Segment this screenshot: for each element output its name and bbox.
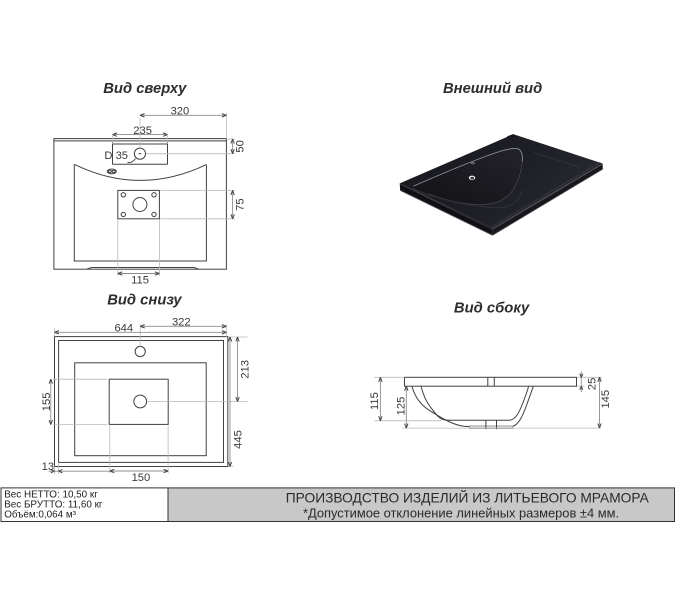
svg-text:Вид снизу: Вид снизу	[107, 293, 182, 309]
svg-text:115: 115	[131, 275, 149, 287]
svg-text:Объём:0,064 м³: Объём:0,064 м³	[4, 510, 76, 521]
svg-text:145: 145	[600, 390, 612, 409]
svg-text:320: 320	[171, 106, 190, 118]
svg-text:155: 155	[41, 393, 53, 412]
svg-text:Внешний вид: Внешний вид	[443, 81, 542, 97]
svg-text:75: 75	[234, 198, 246, 210]
svg-text:322: 322	[172, 317, 191, 329]
svg-text:213: 213	[239, 360, 251, 379]
svg-text:125: 125	[396, 397, 408, 416]
svg-text:13: 13	[42, 461, 54, 473]
svg-text:235: 235	[133, 125, 152, 137]
svg-text:D 35: D 35	[104, 150, 128, 162]
svg-text:Вид сбоку: Вид сбоку	[454, 301, 530, 317]
svg-text:150: 150	[132, 472, 151, 484]
svg-text:115: 115	[369, 392, 381, 410]
svg-text:25: 25	[587, 378, 599, 390]
svg-text:ПРОИЗВОДСТВО ИЗДЕЛИЙ ИЗ ЛИТЬЕВ: ПРОИЗВОДСТВО ИЗДЕЛИЙ ИЗ ЛИТЬЕВОГО МРАМОР…	[286, 488, 650, 505]
svg-text:644: 644	[114, 323, 133, 335]
svg-text:Вид сверху: Вид сверху	[103, 81, 187, 97]
svg-text:*Допустимое отклонение линейны: *Допустимое отклонение линейных размеров…	[303, 505, 619, 520]
svg-text:445: 445	[232, 430, 244, 449]
svg-text:50: 50	[234, 140, 246, 152]
